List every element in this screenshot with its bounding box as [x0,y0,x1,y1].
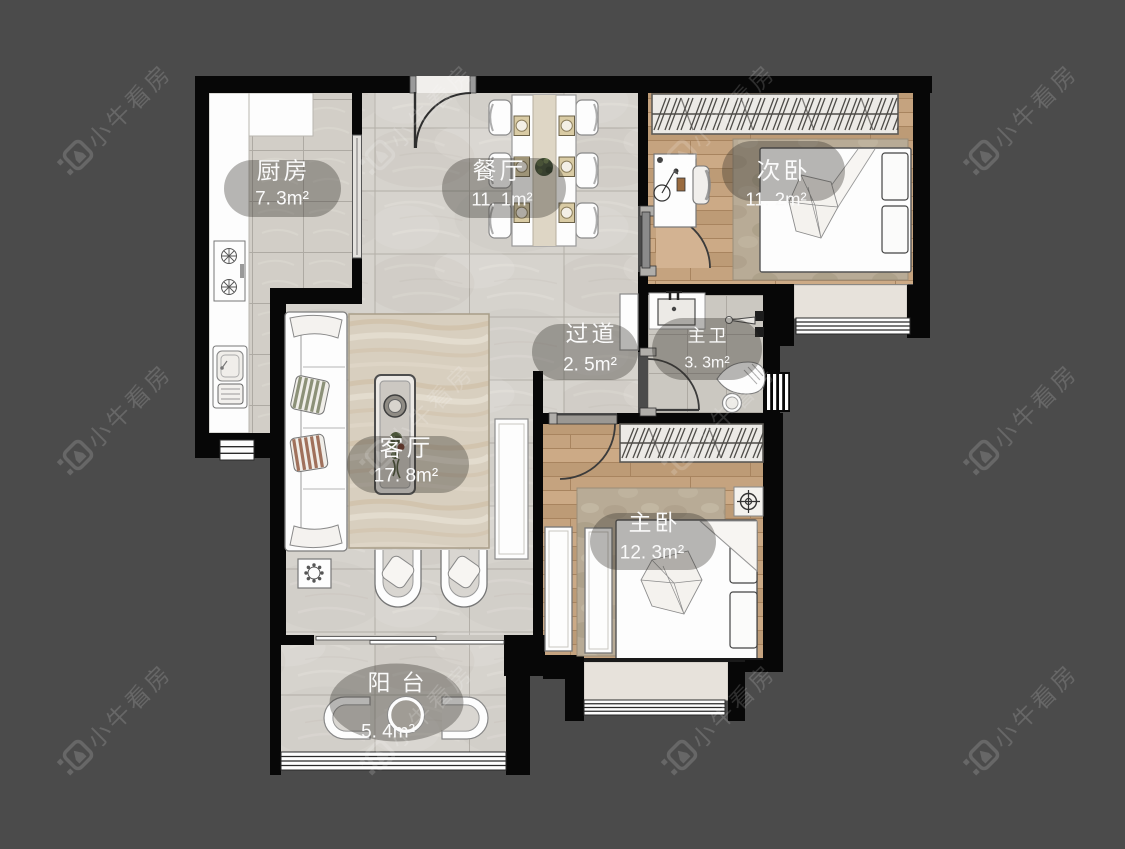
svg-text:5. 4m²: 5. 4m² [361,722,415,743]
svg-text:3. 3m²: 3. 3m² [684,355,730,372]
svg-text:7. 3m²: 7. 3m² [255,189,309,210]
svg-text:12. 3m²: 12. 3m² [620,543,684,564]
svg-text:2. 5m²: 2. 5m² [563,355,617,376]
svg-text:11. 2m²: 11. 2m² [745,189,806,210]
svg-text:11. 1m²: 11. 1m² [471,189,532,210]
